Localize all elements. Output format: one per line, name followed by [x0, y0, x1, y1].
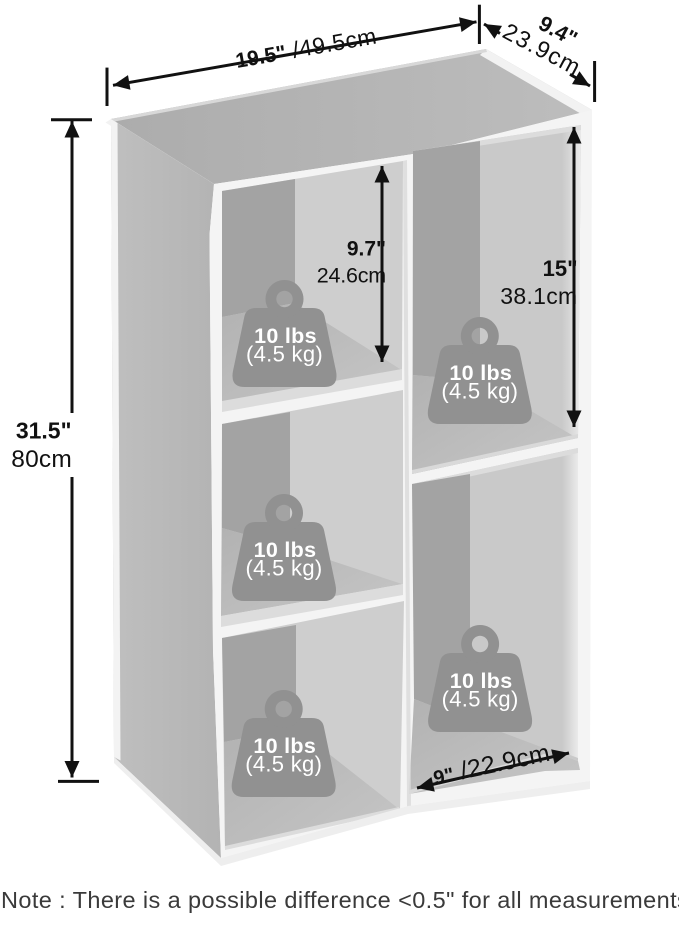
svg-text:Note : There is a possible dif: Note : There is a possible difference <0… — [1, 887, 679, 913]
svg-text:24.6cm: 24.6cm — [317, 264, 386, 288]
svg-text:80cm: 80cm — [11, 446, 72, 473]
svg-text:9.7": 9.7" — [347, 238, 386, 261]
svg-text:31.5": 31.5" — [16, 418, 72, 444]
svg-text:19.5" /49.5cm: 19.5" /49.5cm — [233, 22, 378, 72]
svg-text:15": 15" — [543, 256, 578, 281]
svg-text:38.1cm: 38.1cm — [500, 283, 577, 309]
